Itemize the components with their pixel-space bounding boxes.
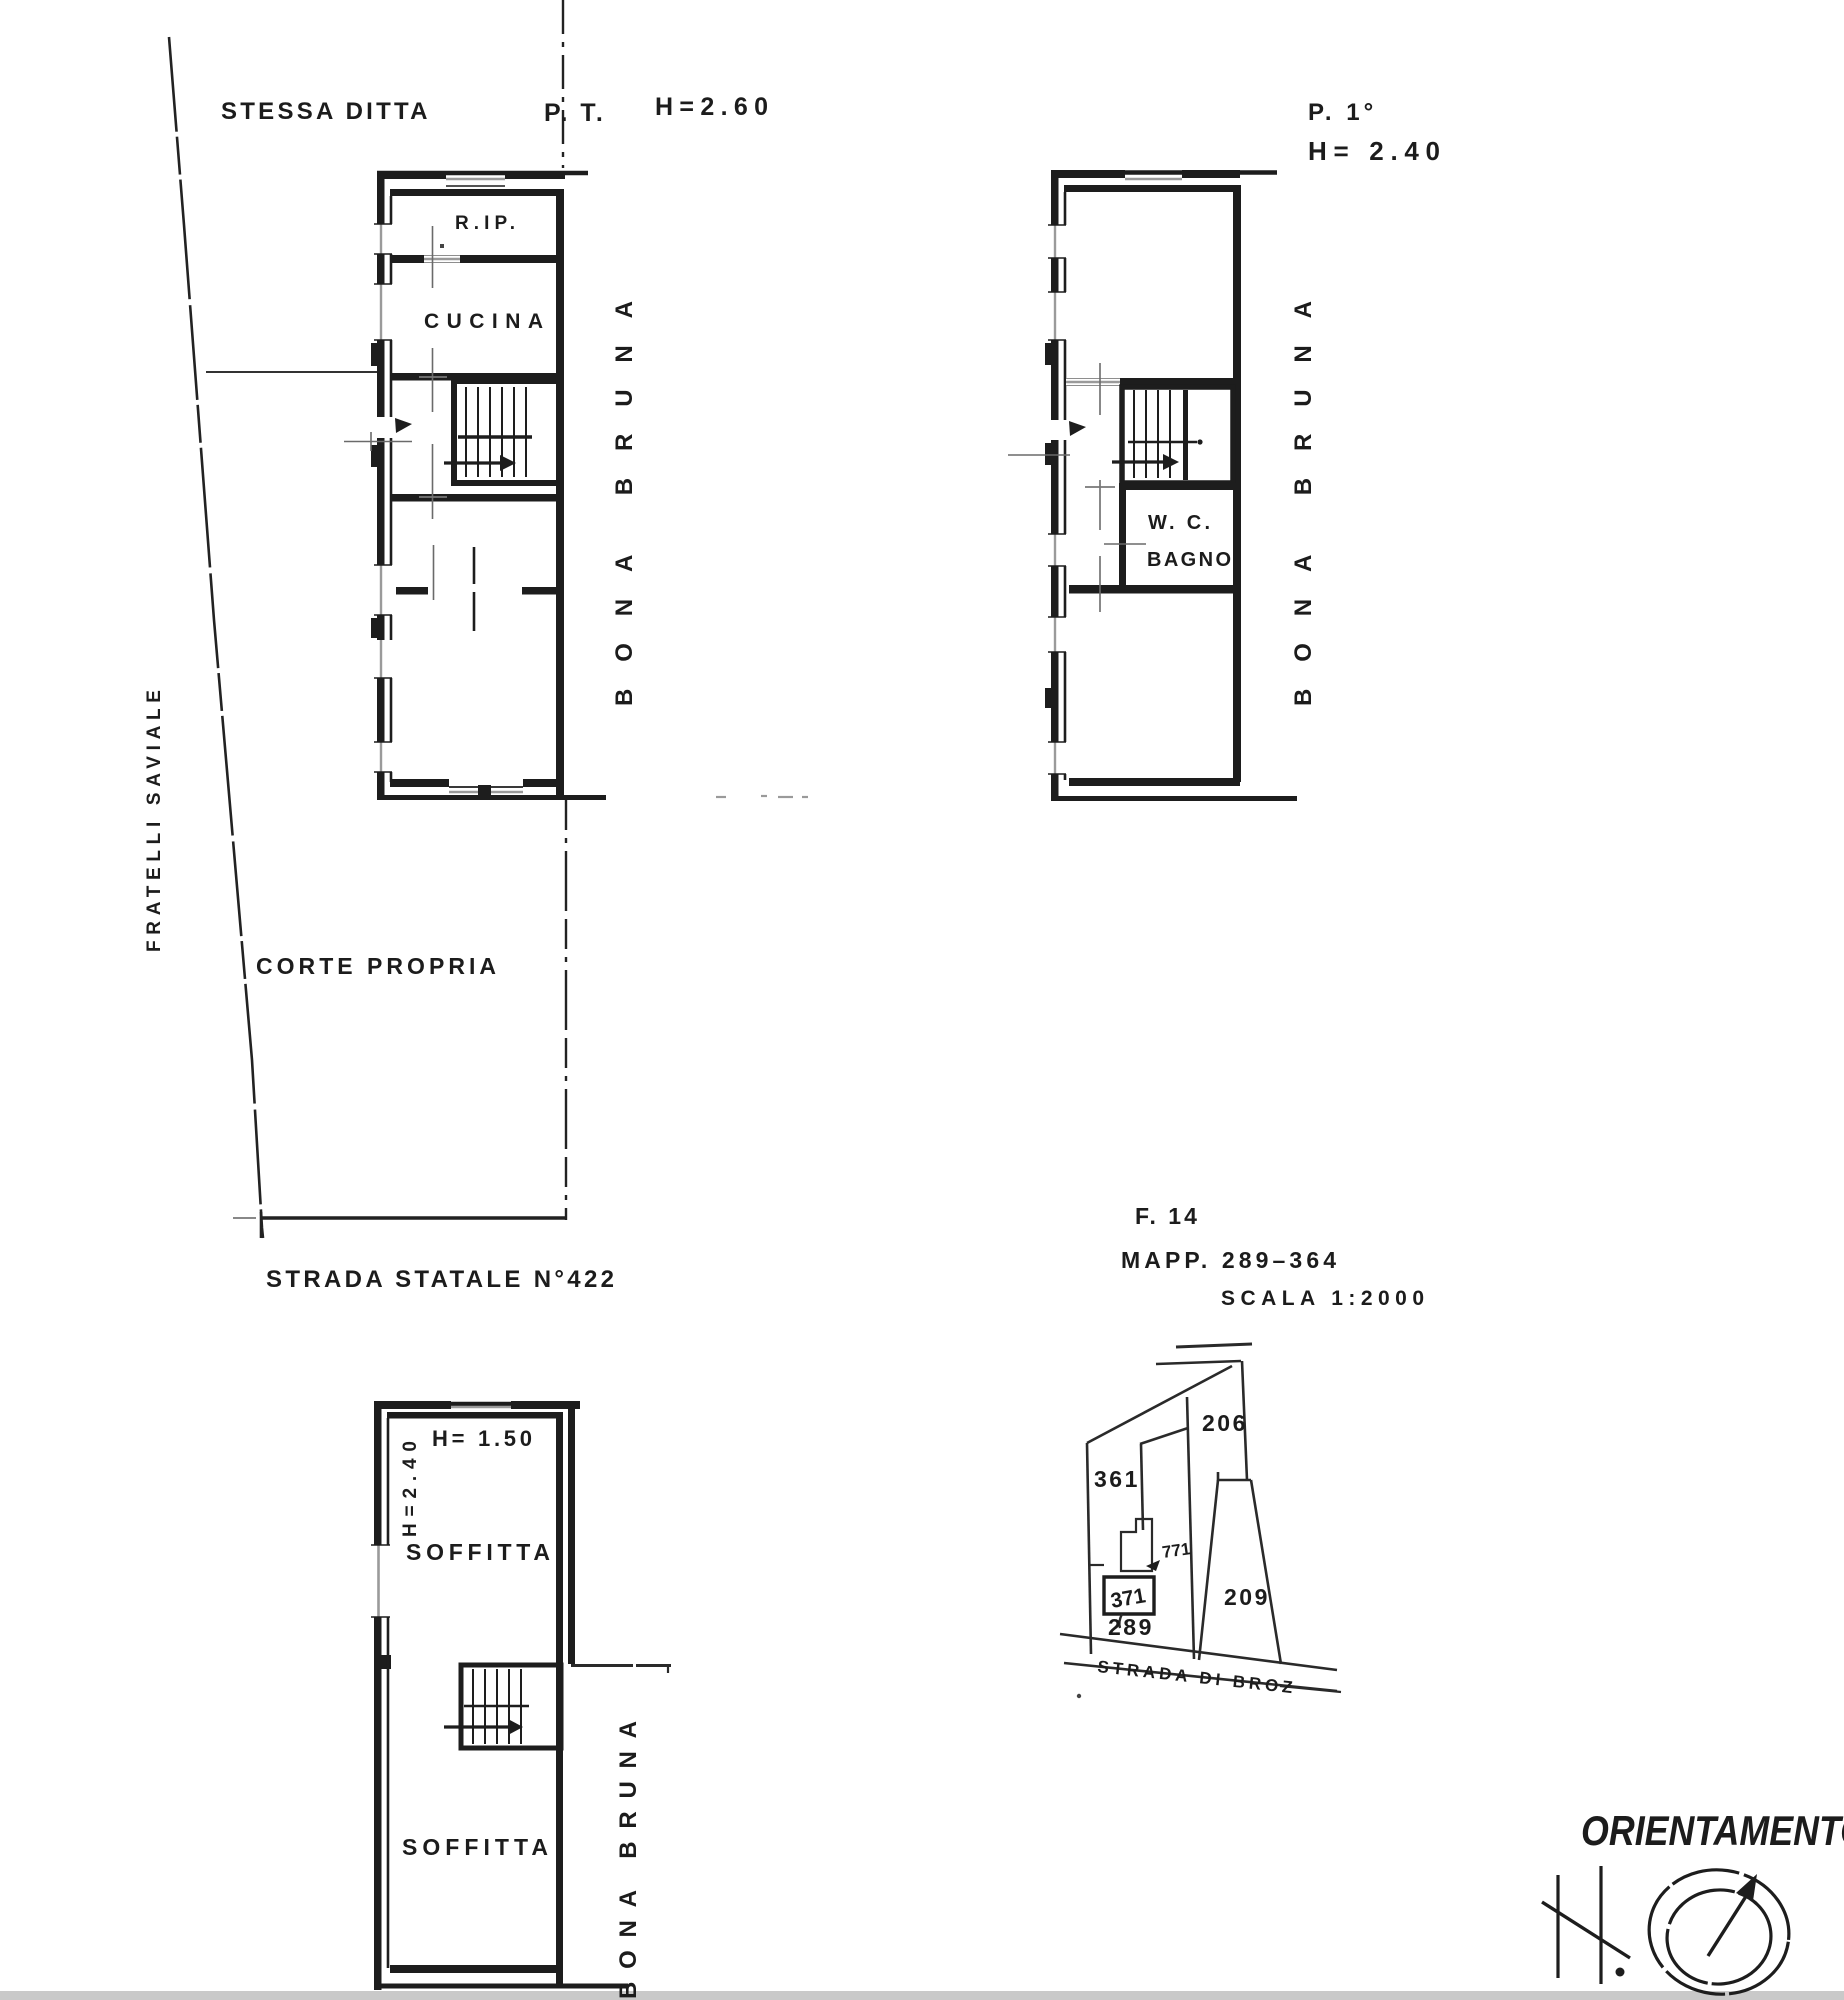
svg-text:SOFFITTA: SOFFITTA xyxy=(402,1834,548,1860)
svg-text:STESSA DITTA: STESSA DITTA xyxy=(221,98,433,125)
svg-text:361: 361 xyxy=(1094,1466,1140,1492)
svg-text:289: 289 xyxy=(1108,1614,1154,1640)
svg-text:F. 14: F. 14 xyxy=(1135,1203,1200,1229)
svg-text:ORIENTAMENTO: ORIENTAMENTO xyxy=(1581,1807,1844,1854)
svg-text:771: 771 xyxy=(1161,1539,1192,1562)
svg-text:209: 209 xyxy=(1224,1584,1270,1610)
svg-text:P. 1°: P. 1° xyxy=(1308,99,1377,126)
svg-text:P. T.: P. T. xyxy=(544,99,606,127)
svg-text:STRADA STATALE N°422: STRADA STATALE N°422 xyxy=(266,1266,614,1293)
svg-text:206: 206 xyxy=(1202,1410,1248,1436)
svg-text:SOFFITTA: SOFFITTA xyxy=(406,1539,550,1565)
svg-text:BAGNO: BAGNO xyxy=(1147,549,1231,571)
svg-text:CORTE PROPRIA: CORTE PROPRIA xyxy=(256,953,496,979)
svg-text:W. C.: W. C. xyxy=(1148,512,1210,534)
